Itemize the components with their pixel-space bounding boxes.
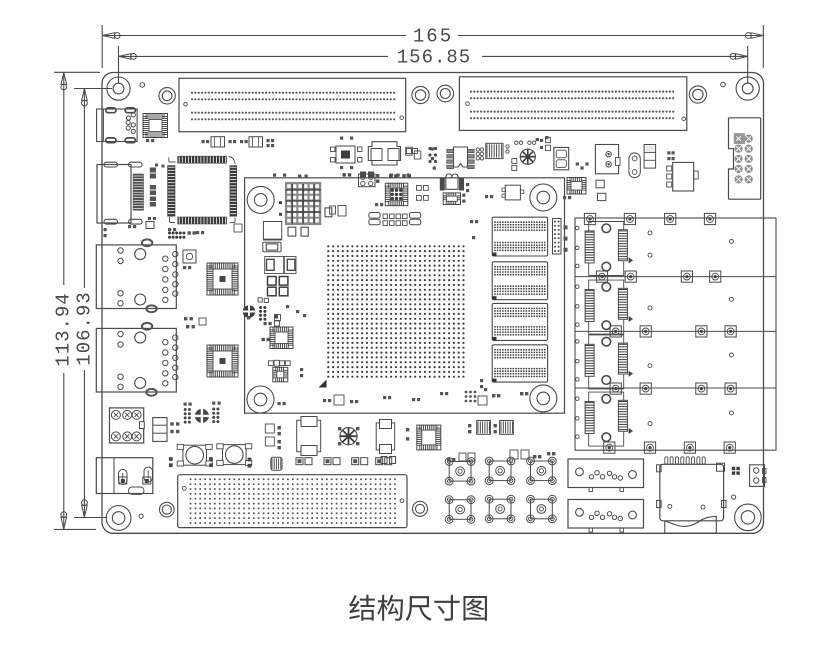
svg-text:113.94: 113.94 (52, 292, 74, 366)
svg-text:165: 165 (413, 26, 453, 48)
svg-text:156.85: 156.85 (397, 47, 471, 69)
svg-text:106.93: 106.93 (74, 291, 96, 365)
